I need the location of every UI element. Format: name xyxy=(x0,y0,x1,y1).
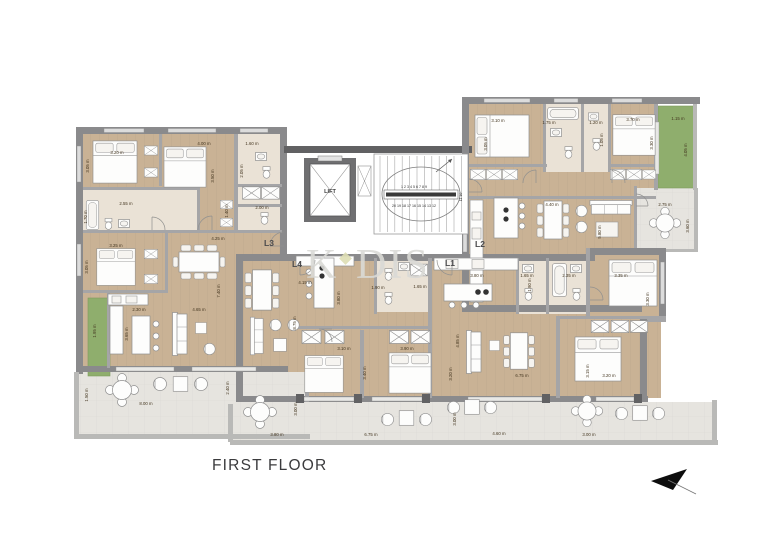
dining-table xyxy=(173,245,225,279)
balcony-side-table xyxy=(633,406,648,421)
lift-label: LIFT xyxy=(324,189,336,195)
dimension-label: 8.75 m xyxy=(292,316,297,330)
toilet xyxy=(385,293,392,305)
watermark-dis: DIS xyxy=(356,242,430,288)
kitchen-sink xyxy=(112,296,121,303)
wardrobe xyxy=(630,321,647,333)
sliding-door xyxy=(596,397,634,401)
dimension-label: 3.65 m xyxy=(124,327,129,341)
lounge-chair xyxy=(615,407,627,419)
dimension-label: 3.05 m xyxy=(85,159,90,173)
window xyxy=(612,99,642,103)
parapet-balcony-right-side xyxy=(712,400,717,445)
wall-l3-bath-column xyxy=(234,134,238,232)
floor-plan-page: LIFT 1 2 3 4 5 6 7 8 9 20 19 18 17 16 15… xyxy=(0,0,768,543)
parapet-balcony-right-bottom xyxy=(548,440,718,445)
sliding-door xyxy=(304,397,354,401)
dimension-label: 1.50 m xyxy=(84,388,89,402)
staircase: 1 2 3 4 5 6 7 8 9 20 19 18 17 16 15 14 1… xyxy=(358,154,468,234)
dimension-label: 3.05 m xyxy=(483,137,488,151)
parapet-terrace-right xyxy=(694,188,698,252)
storage-unit xyxy=(242,187,260,199)
coffee-table xyxy=(274,339,287,352)
dimension-label: 4.40 m xyxy=(545,202,559,207)
dimension-label: 4.60 m xyxy=(492,431,506,436)
dimension-label: 4.25 m xyxy=(211,236,225,241)
dimension-label: 3.40 m xyxy=(362,366,367,380)
bathtub xyxy=(86,200,99,229)
unit-label-l3: L3 xyxy=(264,238,274,248)
dimension-label: 4.15 m xyxy=(298,280,312,285)
wall-l2-bed1-bottom xyxy=(469,164,547,167)
lounge-chair xyxy=(447,401,459,413)
wardrobe xyxy=(486,169,501,179)
dimension-label: 3.90 m xyxy=(400,346,414,351)
dimension-label: 3.50 m xyxy=(210,169,215,183)
wall-l2-bath-left xyxy=(543,104,546,172)
wardrobe xyxy=(390,331,409,344)
dimension-label: 1.65 m xyxy=(520,273,534,278)
dimension-label: 8.00 m xyxy=(139,401,153,406)
coffee-table xyxy=(489,340,499,350)
dimension-label: 1.05 m xyxy=(599,133,604,147)
bed xyxy=(93,141,137,183)
dimension-label: 4.85 m xyxy=(455,334,460,348)
wardrobe xyxy=(642,170,655,179)
stair-numbers-down: 20 19 18 17 16 15 14 13 12 xyxy=(392,204,436,208)
dimension-label: 7.40 m xyxy=(216,284,221,298)
dimension-label: 3.80 m xyxy=(336,291,341,305)
floor-title: FIRST FLOOR xyxy=(212,457,327,474)
dimension-label: 1.40 m xyxy=(224,204,229,218)
window xyxy=(240,129,268,133)
sofa xyxy=(590,200,632,214)
dimension-label: 2.40 m xyxy=(225,381,230,395)
bathtub xyxy=(548,107,579,119)
door-jamb xyxy=(422,394,430,403)
balcony-side-table xyxy=(465,400,480,415)
dimension-label: 4.65 m xyxy=(192,307,206,312)
wall-l1-bedtr-left xyxy=(586,248,590,318)
bed xyxy=(97,249,135,286)
north-arrow xyxy=(651,469,696,494)
sofa xyxy=(250,317,263,355)
stool xyxy=(473,302,479,308)
stool xyxy=(519,203,525,209)
dimension-label: 3.20 m xyxy=(602,373,616,378)
armchair xyxy=(270,319,281,330)
dimension-label: 1.60 m xyxy=(245,141,259,146)
lounge-chair xyxy=(154,378,167,391)
dimension-label: 3.00 m xyxy=(582,432,596,437)
lounge-chair xyxy=(484,401,496,413)
wardrobe xyxy=(144,274,157,283)
wardrobe xyxy=(302,331,321,344)
sink xyxy=(551,129,562,137)
window xyxy=(661,262,665,304)
dimension-label: 3.30 m xyxy=(645,292,650,306)
stool xyxy=(153,321,159,327)
wall-l3-hall xyxy=(83,230,282,233)
bed xyxy=(389,353,431,393)
wall-l3-bed-divider xyxy=(159,134,162,186)
door-jamb xyxy=(542,394,550,403)
armchair xyxy=(576,205,587,216)
floor-plan-drawing: LIFT 1 2 3 4 5 6 7 8 9 20 19 18 17 16 15… xyxy=(0,0,768,543)
dimension-label: 3.80 m xyxy=(270,432,284,437)
wall-core-top xyxy=(284,146,472,153)
lift-door xyxy=(318,156,342,161)
dimension-label: 3.25 m xyxy=(109,243,123,248)
sofa xyxy=(173,313,188,356)
toilet xyxy=(105,218,112,229)
sink xyxy=(119,220,130,228)
toilet xyxy=(565,147,572,159)
dimension-label: 3.60 m xyxy=(685,219,690,233)
wall-l1-bedtr-top xyxy=(588,248,666,255)
stool xyxy=(449,302,455,308)
parapet-balcony-left-side xyxy=(74,372,79,438)
stool xyxy=(519,223,525,229)
kitchen-stove xyxy=(472,260,484,269)
storage-unit xyxy=(261,187,279,199)
toilet xyxy=(263,167,270,179)
wardrobe xyxy=(470,169,485,179)
sliding-door xyxy=(372,397,422,401)
wall-l1-bedbr-left xyxy=(556,316,560,398)
kitchen-stove xyxy=(472,228,481,239)
stool xyxy=(461,302,467,308)
wardrobe xyxy=(610,169,625,179)
dimension-label: 3.20 m xyxy=(448,367,453,381)
dimension-label: 3.80 m xyxy=(470,273,484,278)
stool xyxy=(153,345,159,351)
stair-numbers-side: 11 10 xyxy=(459,193,463,202)
lounge-chair xyxy=(652,407,664,419)
hob-burner xyxy=(503,216,508,221)
wall-l3-bed3-right xyxy=(165,233,168,293)
watermark: K DIS xyxy=(306,242,430,288)
dimension-label: 3.20 m xyxy=(110,150,124,155)
door-jamb xyxy=(634,394,642,403)
dimension-label: 3.15 m xyxy=(585,364,590,378)
unit-label-l1: L1 xyxy=(445,258,455,268)
wardrobe xyxy=(144,146,157,155)
stool xyxy=(519,213,525,219)
wall-l2-terrace-left xyxy=(634,186,637,252)
wardrobe xyxy=(220,218,232,226)
dimension-label: 1.95 m xyxy=(92,324,97,338)
wall-l2-bed2-bottom xyxy=(608,164,656,167)
parapet-balcony-mid-bottom xyxy=(230,440,550,445)
dimension-label: 3.10 m xyxy=(337,346,351,351)
hob-burner xyxy=(475,289,481,295)
wall-l3-bed3-bottom xyxy=(83,290,167,293)
dimension-label: 3.10 m xyxy=(491,118,505,123)
door-jamb xyxy=(296,394,304,403)
stool xyxy=(306,293,312,299)
lounge-chair xyxy=(381,413,393,425)
dimension-label: 2.00 m xyxy=(255,205,269,210)
wall-l1-bath2-left xyxy=(546,258,549,314)
unit-l3-bathroom-floor xyxy=(236,134,282,230)
dimension-label: 3.05 m xyxy=(84,260,89,274)
wardrobe xyxy=(502,169,517,179)
window xyxy=(104,129,144,133)
door-jamb xyxy=(354,394,362,403)
wall-l4-bedrooms-divider xyxy=(360,330,364,398)
dimension-label: 2.55 m xyxy=(119,201,133,206)
wall-l4-top xyxy=(236,254,288,261)
dimension-label: 3.70 m xyxy=(626,117,640,122)
dimension-label: 6.75 m xyxy=(515,373,529,378)
unit-label-l4: L4 xyxy=(292,259,302,269)
wall-l2-wc-left xyxy=(581,104,584,172)
wardrobe xyxy=(626,169,641,179)
lift: LIFT xyxy=(304,156,356,222)
window xyxy=(168,129,216,133)
dimension-label: 3.00 m xyxy=(452,412,457,426)
bathtub xyxy=(552,264,566,297)
window xyxy=(77,146,81,182)
sink xyxy=(256,153,267,161)
wardrobe xyxy=(411,331,430,344)
hob-burner xyxy=(503,207,508,212)
armchair xyxy=(576,221,587,232)
wardrobe xyxy=(611,320,629,332)
window xyxy=(554,99,578,103)
window xyxy=(77,244,81,276)
armchair xyxy=(204,343,215,354)
coffee-table xyxy=(196,323,207,334)
hob-burner xyxy=(483,289,489,295)
dimension-label: 3.30 m xyxy=(649,136,654,150)
dimension-label: 1.90 m xyxy=(527,278,532,292)
wall-l2-bed2-left xyxy=(608,104,611,172)
dimension-label: 2.30 m xyxy=(132,307,146,312)
kitchen-counter xyxy=(110,306,123,354)
wall-l1-bedbr-top xyxy=(556,316,666,319)
parapet-green-balcony xyxy=(693,104,697,190)
dining-table xyxy=(245,270,279,310)
sliding-door xyxy=(192,367,256,371)
stool xyxy=(153,333,159,339)
unit-l3-bathtub-room-floor xyxy=(83,189,199,231)
toilet xyxy=(573,289,580,301)
sliding-door xyxy=(116,367,174,371)
kitchen-island xyxy=(132,316,150,354)
toilet xyxy=(261,213,268,225)
wall-l4-bedrooms-top xyxy=(296,326,432,329)
stair-rail-core xyxy=(386,193,456,197)
dimension-label: 1.70 m xyxy=(83,210,88,224)
dimension-label: 1.90 m xyxy=(371,285,385,290)
dimension-label: 1.65 m xyxy=(413,284,427,289)
window xyxy=(484,99,530,103)
wardrobe xyxy=(144,168,157,177)
wall-l3-tubroom-top xyxy=(83,187,199,190)
dimension-label: 2.75 m xyxy=(658,202,672,207)
sofa xyxy=(467,331,482,374)
wardrobe xyxy=(144,249,157,258)
dimension-label: 1.15 m xyxy=(671,116,685,121)
bed xyxy=(164,147,206,187)
balcony-side-table xyxy=(399,411,414,426)
sliding-door xyxy=(655,122,659,174)
parapet-balcony-mid-left xyxy=(228,404,233,442)
stair-numbers-up: 1 2 3 4 5 6 7 8 9 xyxy=(401,185,427,189)
balcony-side-table xyxy=(173,377,188,392)
dimension-label: 3.00 m xyxy=(293,402,298,416)
dining-table xyxy=(504,333,535,369)
kitchen-sink xyxy=(472,212,481,220)
dimension-label: 1.75 m xyxy=(542,120,556,125)
unit-label-l2: L2 xyxy=(475,239,485,249)
dimension-label: 1.20 m xyxy=(589,120,603,125)
dimension-label: 5.80 m xyxy=(597,225,602,239)
lounge-chair xyxy=(195,378,208,391)
dimension-label: 2.05 m xyxy=(239,164,244,178)
dimension-label: 6.75 m xyxy=(364,432,378,437)
dimension-label: 4.05 m xyxy=(683,143,688,157)
wall-bottom-band-left xyxy=(236,254,243,402)
dimension-label: 4.00 m xyxy=(197,141,211,146)
dimension-label: 3.35 m xyxy=(614,273,628,278)
wardrobe xyxy=(591,320,609,332)
lounge-chair xyxy=(419,413,431,425)
dimension-label: 2.35 m xyxy=(562,273,576,278)
kitchen-stove xyxy=(126,296,137,303)
bed xyxy=(305,356,343,393)
sink xyxy=(523,265,534,273)
sink xyxy=(571,265,582,273)
